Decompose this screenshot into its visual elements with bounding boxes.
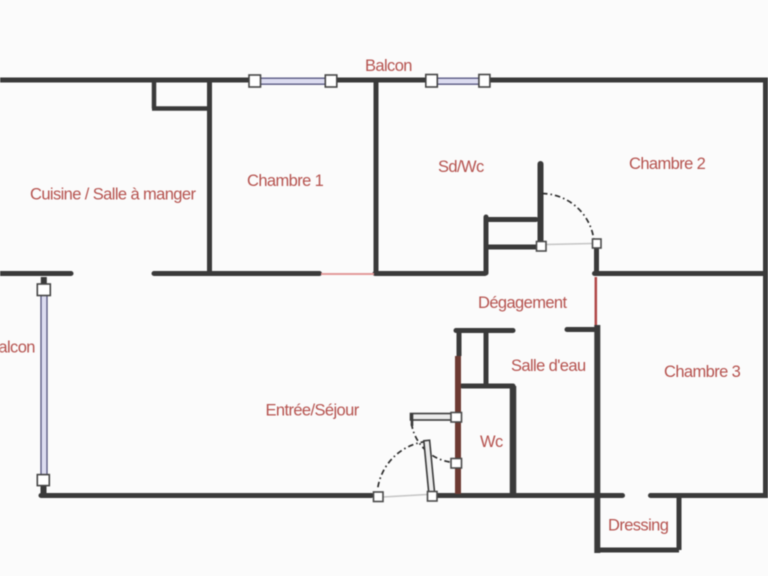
svg-text:Dressing: Dressing bbox=[608, 517, 669, 535]
svg-text:Cuisine / Salle à manger: Cuisine / Salle à manger bbox=[30, 186, 196, 204]
svg-text:Sd/Wc: Sd/Wc bbox=[438, 158, 484, 176]
svg-text:Salle d'eau: Salle d'eau bbox=[511, 357, 586, 375]
svg-text:Balcon: Balcon bbox=[0, 339, 35, 357]
svg-text:Chambre 1: Chambre 1 bbox=[247, 172, 324, 190]
svg-text:Entrée/Séjour: Entrée/Séjour bbox=[266, 402, 360, 420]
svg-text:Balcon: Balcon bbox=[365, 57, 412, 75]
svg-text:Chambre 2: Chambre 2 bbox=[629, 155, 706, 173]
svg-text:Dégagement: Dégagement bbox=[478, 294, 567, 312]
svg-text:Wc: Wc bbox=[480, 433, 503, 451]
svg-text:Chambre 3: Chambre 3 bbox=[664, 363, 741, 381]
